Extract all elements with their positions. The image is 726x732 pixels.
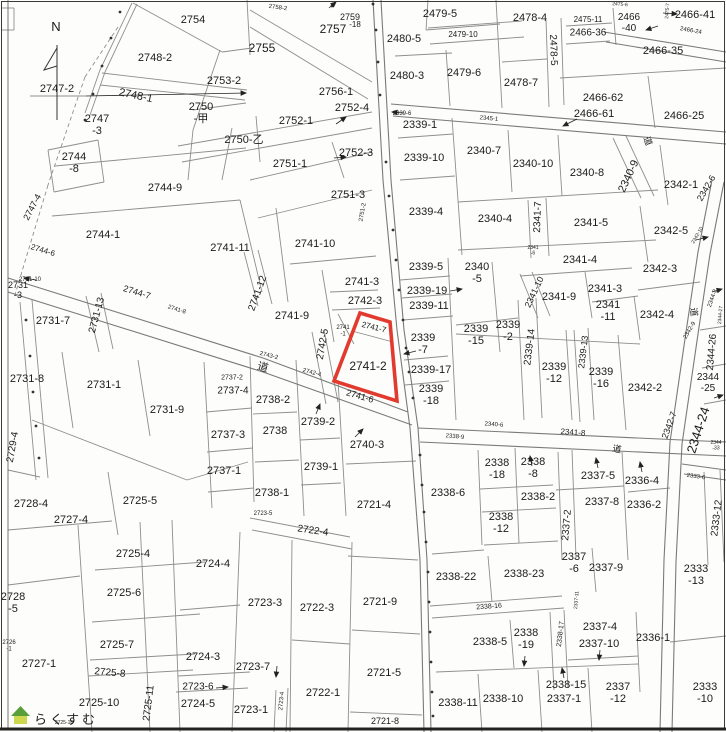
parcel-label: 2752-3 — [339, 147, 373, 159]
parcel-label: 2337-5 — [581, 470, 615, 482]
parcel-label: 2338-2 — [521, 491, 555, 503]
parcel-label: 2757 — [320, 22, 347, 36]
parcel-label: 2753-2 — [207, 75, 241, 87]
parcel-label: 2341-8 — [560, 427, 586, 438]
parcel-label: 2342-2 — [628, 382, 662, 394]
parcel-label: 2466-36 — [570, 28, 607, 39]
parcel-label: 2737-2 — [221, 374, 243, 381]
parcel-label: 2721-5 — [367, 667, 401, 679]
parcel-label: 2741-2 — [349, 359, 387, 373]
parcel-label: 2336-1 — [636, 632, 670, 644]
parcel-label: 2723-3 — [248, 597, 282, 609]
parcel-label: 2338-10 — [483, 693, 523, 705]
parcel-label: 2750-乙 — [224, 133, 263, 146]
parcel-label: 2339-10 — [404, 152, 444, 164]
parcel-label: 2731-8 — [10, 373, 44, 385]
parcel-label: 2739-2 — [301, 416, 335, 428]
parcel-label: 2722-3 — [300, 602, 334, 614]
parcel-label: 2739-1 — [304, 461, 338, 473]
parcel-label: 2740-3 — [350, 439, 384, 451]
parcel-label: 2738-2 — [256, 394, 290, 406]
parcel-label: 2336-4 — [625, 475, 659, 487]
parcel-label: 2466-61 — [574, 108, 614, 120]
parcel-label: 2725-7 — [100, 639, 134, 651]
parcel-label: 2340-4 — [478, 213, 512, 225]
parcel-label: 2338-6 — [431, 487, 465, 499]
parcel-label: 2727-1 — [22, 658, 56, 670]
parcel-label: 2721-9 — [363, 596, 397, 608]
parcel-label: 2741-11 — [210, 242, 250, 254]
parcel-label: 2731-7 — [36, 315, 70, 327]
parcel-label: 2744-1 — [86, 229, 120, 241]
parcel-label: 2342-4 — [640, 309, 674, 321]
parcel-label: 2478-7 — [504, 77, 538, 89]
parcel-label: 2737-4 — [217, 386, 249, 397]
parcel-label: 2341-3 — [588, 283, 622, 295]
parcel-label: 2479-6 — [447, 67, 481, 79]
parcel-label: -18 — [349, 20, 361, 29]
parcel-label: 2752-1 — [279, 115, 313, 127]
parcel-label: 2751-1 — [273, 158, 307, 170]
parcel-label: 2725-4 — [116, 548, 150, 560]
parcel-label: 2754 — [181, 14, 205, 26]
parcel-label: 2756-1 — [319, 86, 353, 98]
parcel-label: 2466-62 — [583, 92, 623, 104]
parcel-label: 道 — [612, 442, 623, 454]
parcel-label: 2744-9 — [148, 182, 182, 194]
parcel-label: 2339-1 — [403, 119, 437, 131]
parcel-label: 2341-4 — [563, 254, 597, 266]
parcel-label: 2339-6 — [393, 111, 412, 117]
parcel-label: 2724-3 — [186, 651, 220, 663]
parcel-label: 2724-4 — [196, 558, 230, 570]
parcel-label: 2478-4 — [513, 12, 547, 24]
parcel-label: 2338-5 — [473, 636, 507, 648]
parcel-label: 2724-5 — [181, 698, 215, 710]
watermark-logo-base — [14, 715, 27, 724]
parcel-label: 2731-1 — [87, 379, 121, 391]
parcel-label: 2752-4 — [335, 102, 369, 114]
parcel-label: 2480-5 — [387, 33, 421, 45]
parcel-label: 2466-35 — [643, 45, 683, 57]
parcel-label: 2466-25 — [664, 110, 704, 122]
parcel-label: 2727-4 — [54, 514, 88, 526]
parcel-label: 2723-5 — [254, 511, 273, 517]
parcel-label: 2738 — [263, 425, 287, 437]
cadastral-map: 27542748-22753-22747-22748-12750-甲2750-乙… — [0, 0, 726, 732]
parcel-label: 2339-11 — [409, 300, 449, 312]
parcel-label: 2741-10 — [295, 238, 335, 250]
parcel-label: 道 — [688, 307, 700, 317]
parcel-label: 2341-5 — [574, 217, 608, 229]
parcel-label: 2342-5 — [654, 225, 688, 237]
parcel-label: 2339-5 — [409, 261, 443, 273]
parcel-label: 2479-5 — [423, 8, 457, 20]
parcel-label: 2338-15 — [546, 679, 586, 691]
parcel-label: 2742-3 — [348, 295, 382, 307]
parcel-label: 2751-3 — [331, 189, 365, 201]
parcel-label: 2741-9 — [275, 310, 309, 322]
parcel-label: 2737-3 — [211, 429, 245, 441]
parcel-label: 2725-10 — [79, 697, 119, 709]
parcel-label: 2341-9 — [542, 291, 576, 303]
parcel-label: 2341-7 — [532, 201, 544, 233]
parcel-label: 2480-3 — [390, 70, 424, 82]
parcel-label: 2722-1 — [306, 687, 340, 699]
parcel-label: 2340-8 — [570, 167, 604, 179]
parcel-label: 2340-7 — [467, 145, 501, 157]
parcel-label: 2723-6 — [182, 682, 214, 693]
parcel-label: 2737-1 — [207, 465, 241, 477]
parcel-label: 2337-9 — [589, 562, 623, 574]
parcel-label: 2721-8 — [371, 716, 399, 726]
parcel-label: 2478-5 — [547, 34, 559, 66]
parcel-label: 2336-2 — [627, 499, 661, 511]
parcel-label: 2466-41 — [675, 9, 715, 21]
parcel-label: 2725-6 — [107, 587, 141, 599]
parcel-label: 2723-1 — [234, 704, 268, 716]
parcel-label: 2475-11 — [574, 15, 603, 24]
parcel-label: 2338-11 — [438, 697, 478, 709]
parcel-label: 2337-1 — [547, 693, 581, 705]
parcel-label: 2337-10 — [579, 638, 619, 650]
parcel-label: 2721-4 — [357, 499, 391, 511]
parcel-label: 2738-1 — [255, 487, 289, 499]
parcel-label: 2728-4 — [14, 498, 48, 510]
parcel-label: 2479-10 — [448, 30, 478, 39]
parcel-label: 2338-23 — [504, 568, 544, 580]
cadastral-map-page: 27542748-22753-22747-22748-12750-甲2750-乙… — [0, 0, 726, 732]
parcel-label: 2741-3 — [345, 276, 379, 288]
parcel-label: 2338-22 — [436, 571, 476, 583]
parcel-label: 2755 — [249, 41, 276, 55]
compass-north-label: N — [51, 19, 60, 34]
parcel-label: 2337-4 — [583, 621, 617, 633]
tiny-parcel-label: 2725-16 — [55, 720, 74, 726]
parcel-label: 2723-7 — [236, 661, 270, 673]
parcel-label: 2748-2 — [138, 52, 172, 64]
parcel-label: 2731-9 — [150, 404, 184, 416]
parcel-label: 2339-17 — [411, 364, 451, 376]
parcel-label: 2342-1 — [664, 179, 698, 191]
parcel-label: 2340-10 — [513, 158, 553, 170]
parcel-label: 2339-19 — [407, 285, 447, 297]
parcel-label: 2337-8 — [585, 496, 619, 508]
parcel-label: 2342-3 — [643, 263, 677, 275]
parcel-label: 2725-5 — [123, 495, 157, 507]
parcel-label: 2339-4 — [409, 206, 443, 218]
